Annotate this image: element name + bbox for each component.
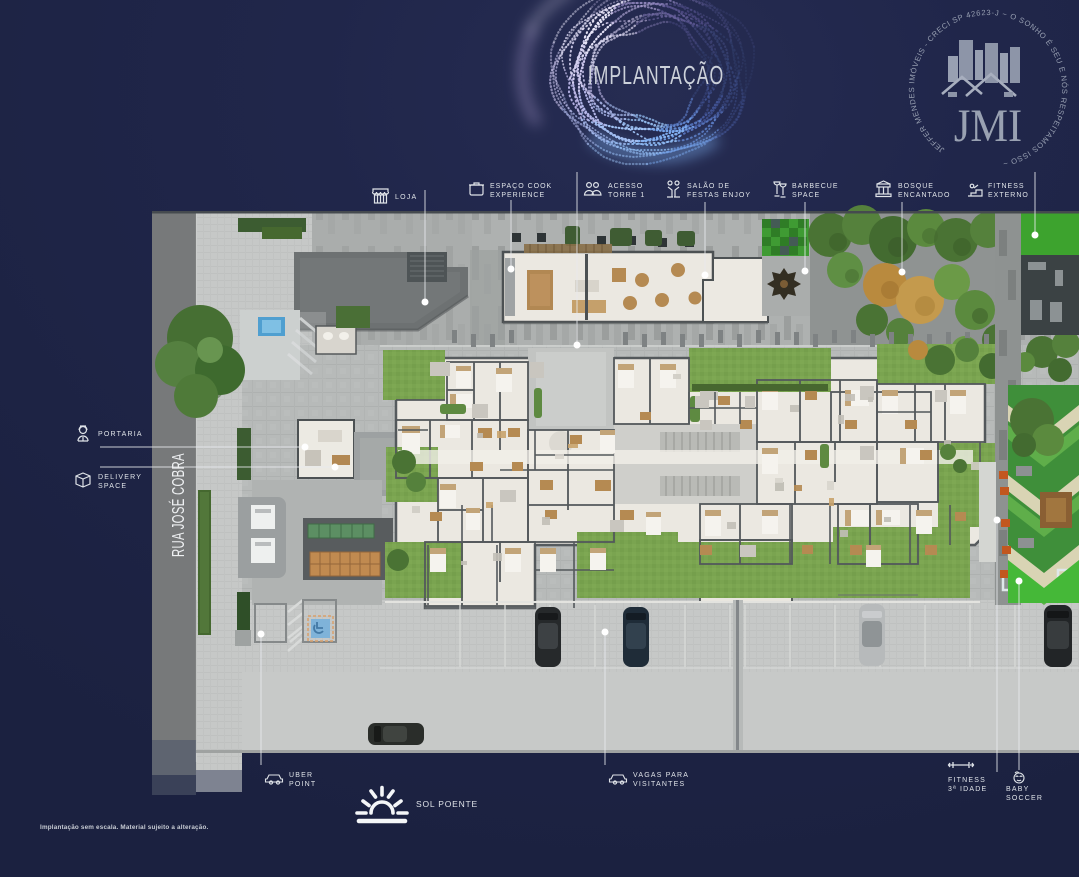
svg-text:PORTARIA: PORTARIA xyxy=(98,431,143,438)
svg-text:BABY: BABY xyxy=(1006,786,1029,793)
svg-text:UBER: UBER xyxy=(289,772,313,779)
svg-text:SALÃO DE: SALÃO DE xyxy=(687,181,730,190)
svg-text:BOSQUE: BOSQUE xyxy=(898,183,934,190)
svg-text:3ª IDADE: 3ª IDADE xyxy=(948,786,987,793)
svg-text:EXPERIENCE: EXPERIENCE xyxy=(490,192,545,199)
svg-text:SOL POENTE: SOL POENTE xyxy=(416,799,478,809)
svg-text:SPACE: SPACE xyxy=(792,192,820,199)
svg-text:VISITANTES: VISITANTES xyxy=(633,781,685,788)
svg-text:SPACE: SPACE xyxy=(98,483,127,490)
svg-text:TORRE 1: TORRE 1 xyxy=(608,192,645,199)
svg-text:SOCCER: SOCCER xyxy=(1006,795,1043,802)
svg-text:VAGAS PARA: VAGAS PARA xyxy=(633,772,689,779)
svg-text:LOJA: LOJA xyxy=(395,194,417,201)
svg-text:ESPAÇO COOK: ESPAÇO COOK xyxy=(490,183,552,190)
svg-text:IMPLANTAÇÃO: IMPLANTAÇÃO xyxy=(588,61,725,90)
svg-text:Implantação sem escala. Materi: Implantação sem escala. Material sujeito… xyxy=(40,824,208,831)
svg-text:EXTERNO: EXTERNO xyxy=(988,192,1029,199)
svg-text:ENCANTADO: ENCANTADO xyxy=(898,192,950,199)
svg-text:FITNESS: FITNESS xyxy=(948,777,986,784)
svg-text:RUA JOSÉ COBRA: RUA JOSÉ COBRA xyxy=(168,453,188,557)
svg-text:DELIVERY: DELIVERY xyxy=(98,474,142,481)
svg-text:JMI: JMI xyxy=(954,99,1022,152)
svg-text:ACESSO: ACESSO xyxy=(608,183,643,190)
svg-text:FESTAS ENJOY: FESTAS ENJOY xyxy=(687,192,751,199)
svg-text:POINT: POINT xyxy=(289,781,316,788)
svg-text:BARBECUE: BARBECUE xyxy=(792,183,839,190)
svg-text:FITNESS: FITNESS xyxy=(988,183,1025,190)
